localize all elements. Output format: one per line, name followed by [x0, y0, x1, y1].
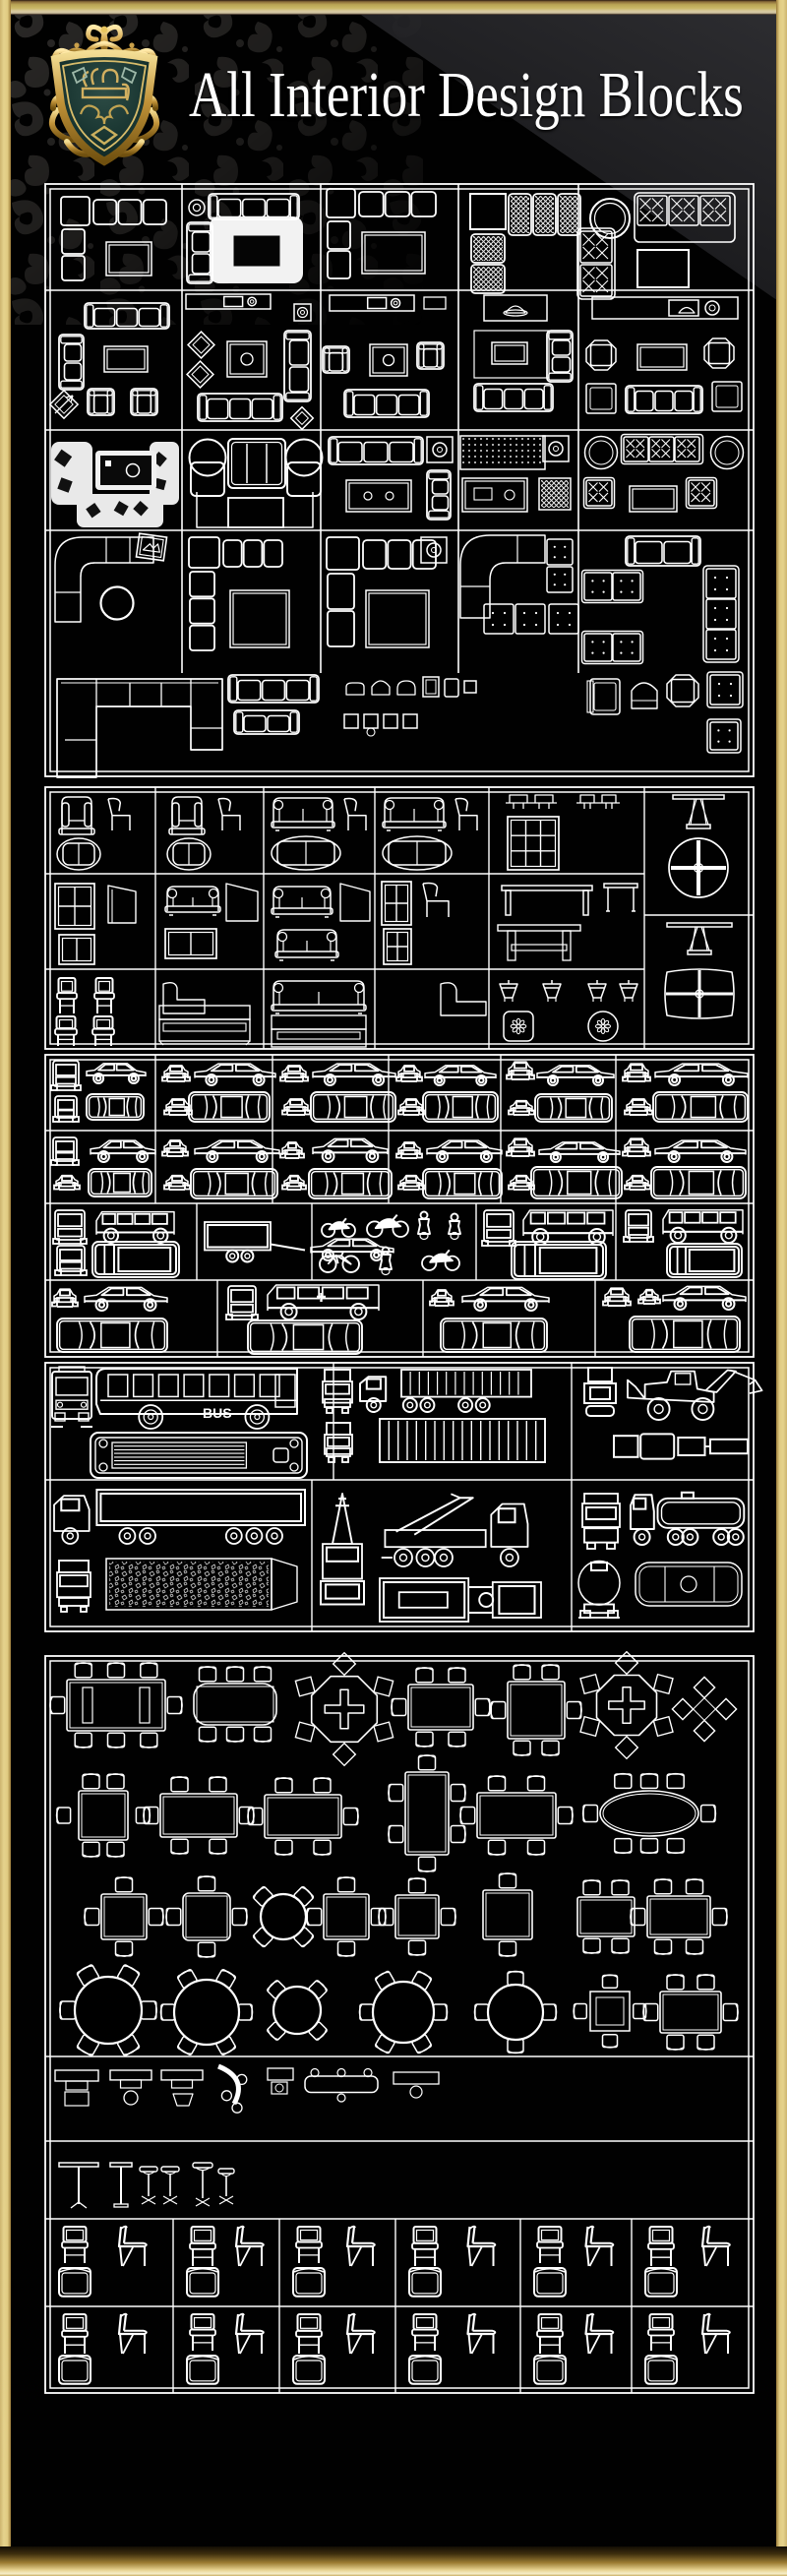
svg-text:BUS: BUS	[203, 1405, 232, 1421]
